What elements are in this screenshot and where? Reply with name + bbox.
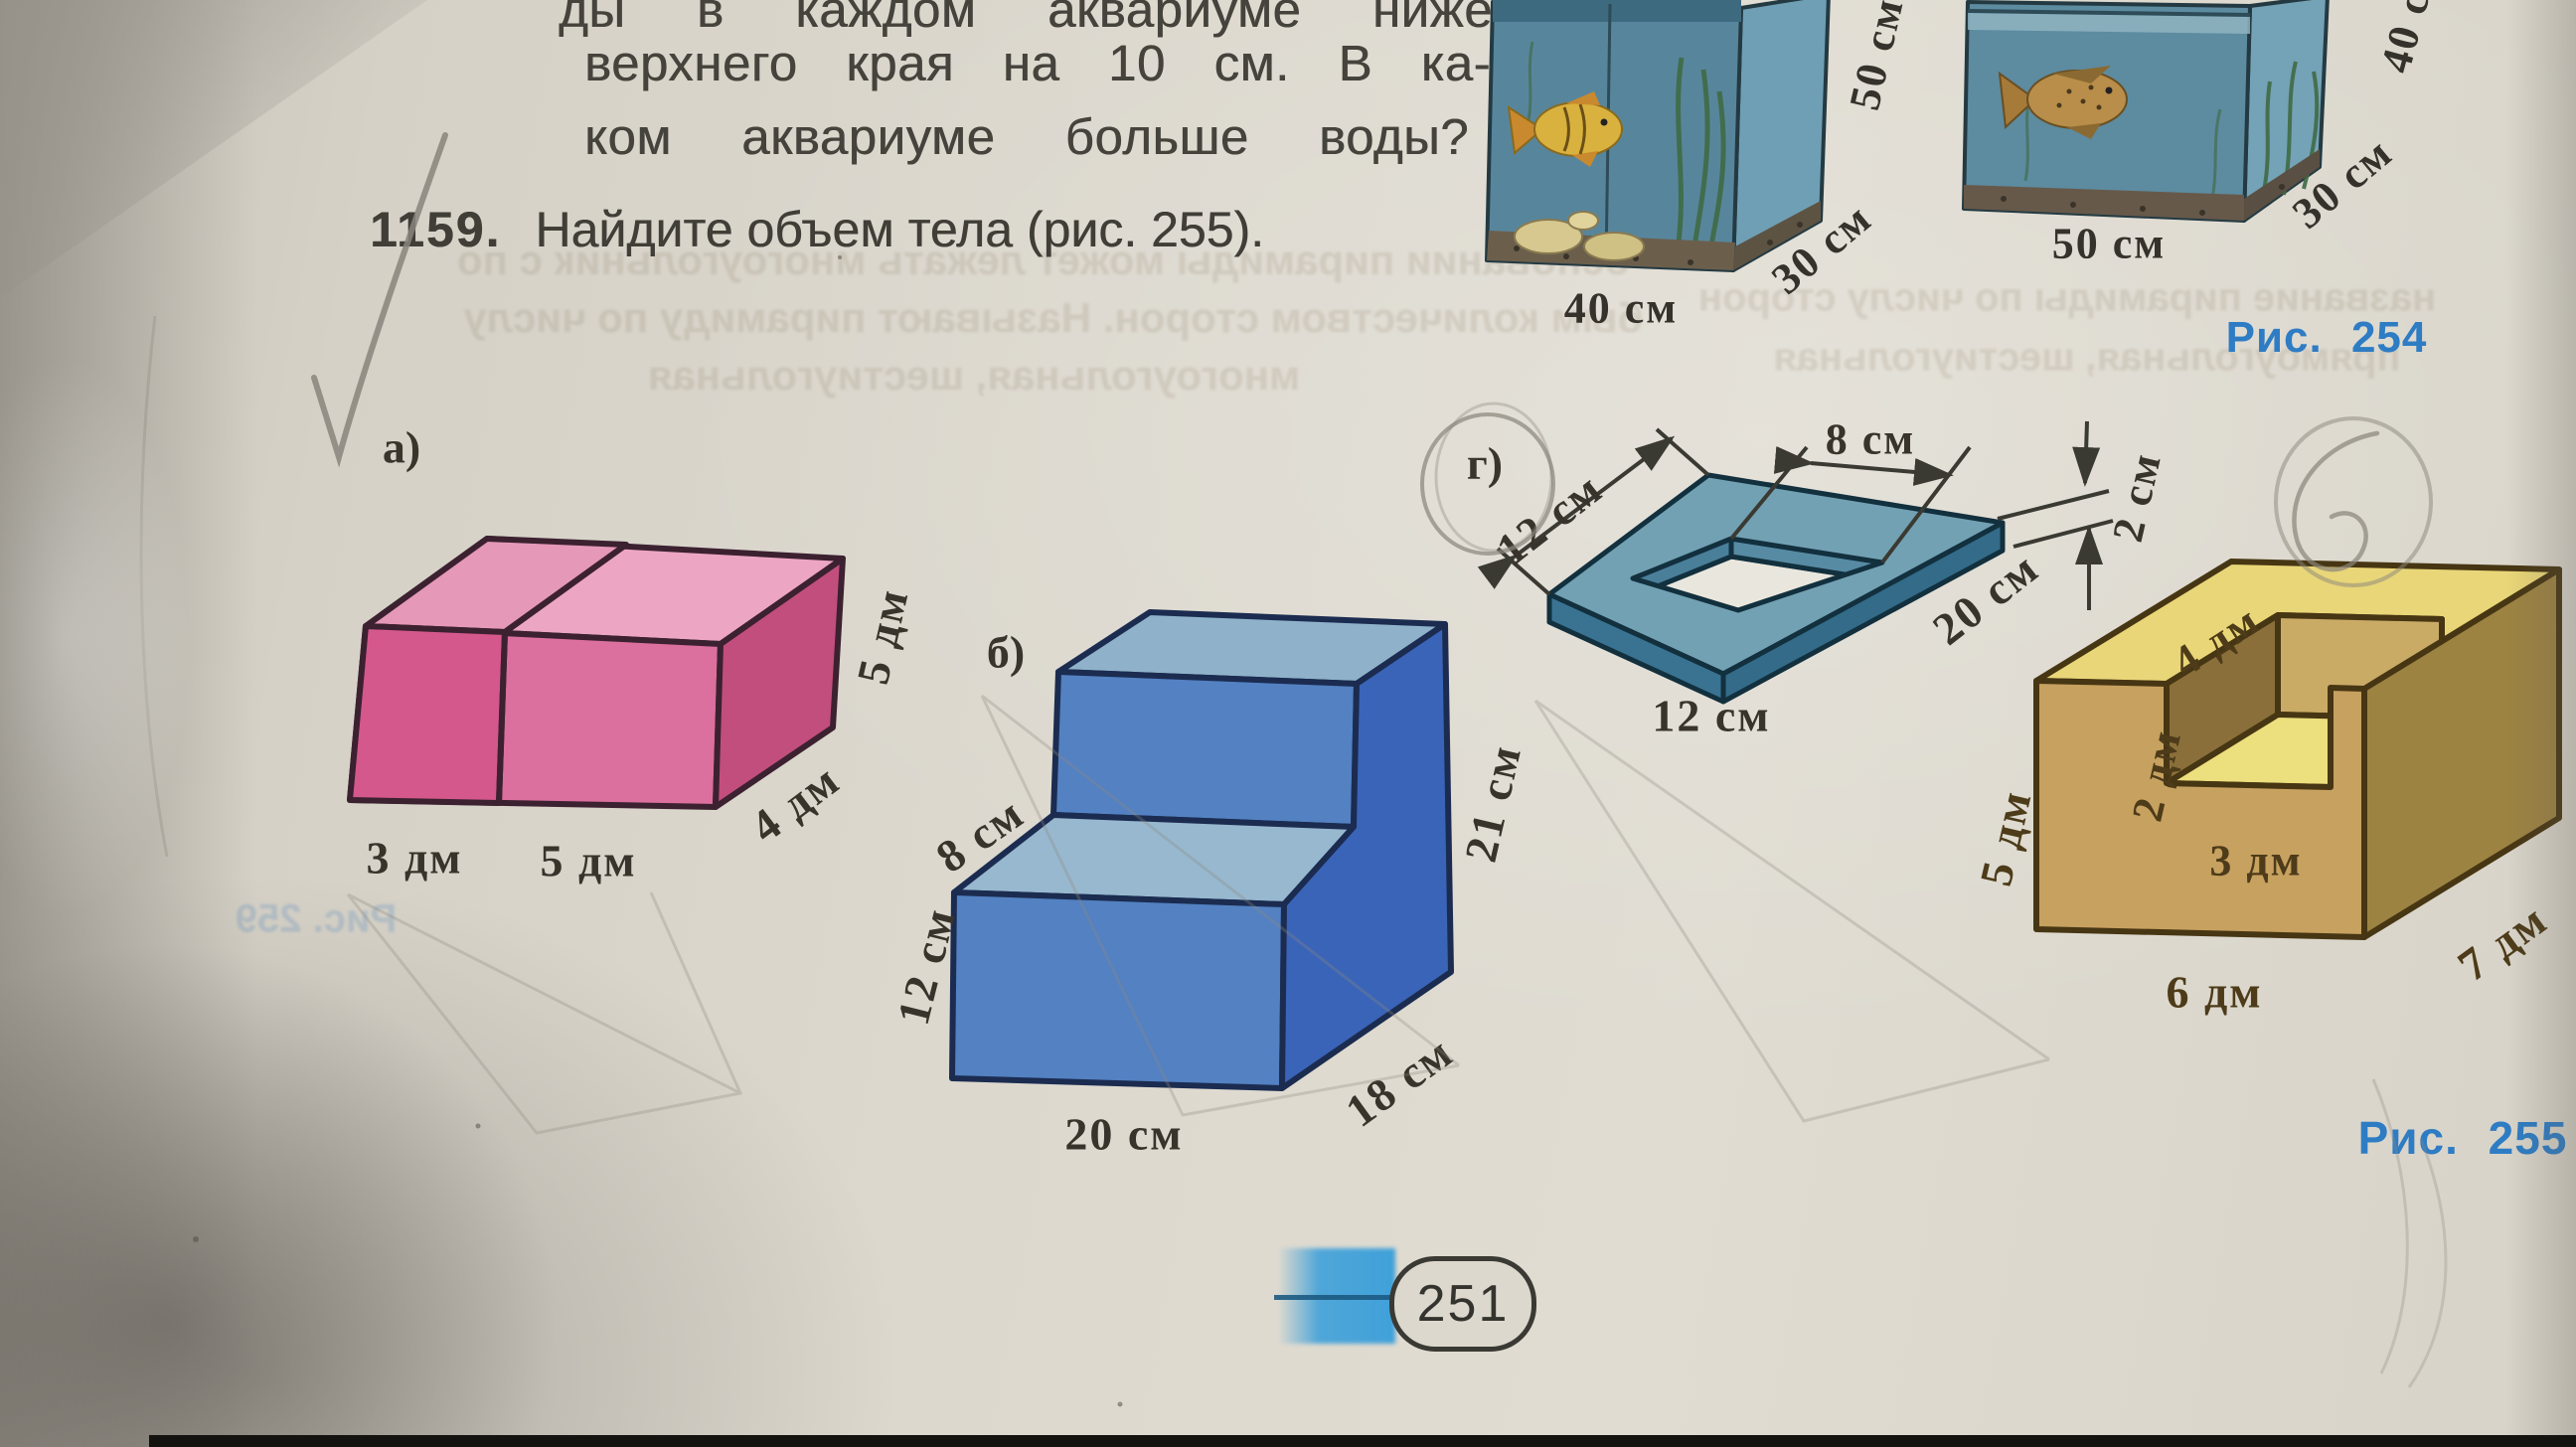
textbook-page-photo: основании пирамиды может лежать многоуго… — [0, 0, 2576, 1447]
pencil-checkmark-icon — [314, 135, 445, 457]
right-edge-shadow — [2506, 0, 2576, 1447]
pencil-circle-around-g — [1422, 414, 1553, 554]
pencil-scribble — [2294, 433, 2377, 569]
bottom-left-corner-shadow — [0, 944, 557, 1447]
photo-bottom-edge — [149, 1435, 2576, 1447]
